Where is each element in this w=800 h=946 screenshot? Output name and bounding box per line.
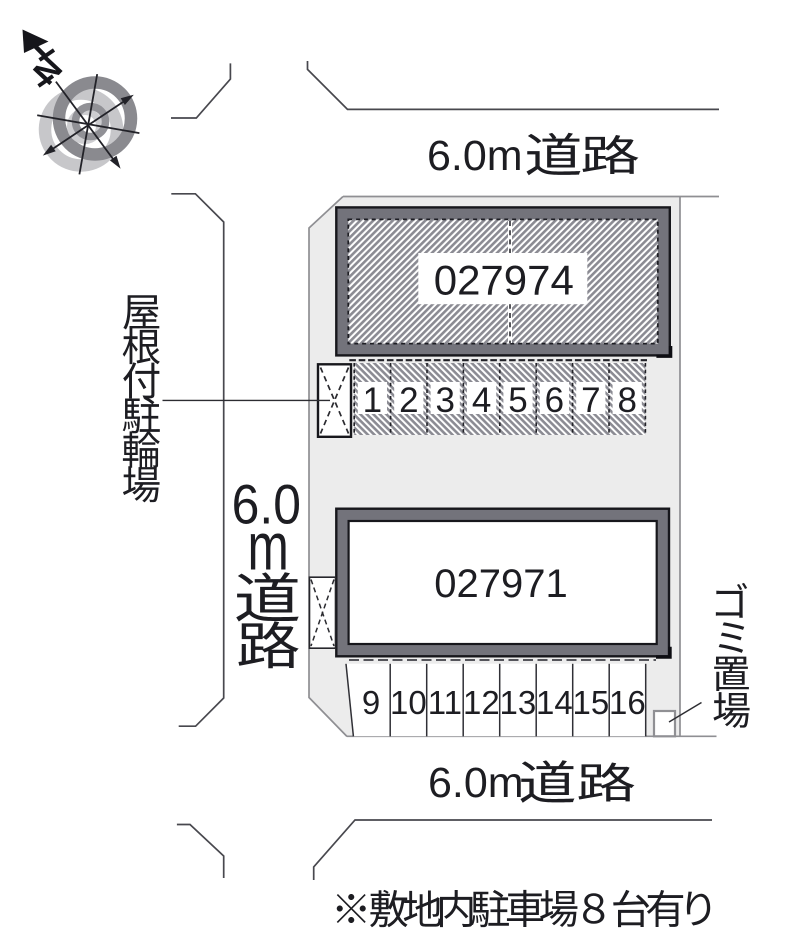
svg-text:12: 12 [463,684,500,721]
svg-text:3: 3 [435,381,454,420]
svg-text:8: 8 [617,381,636,420]
svg-text:027971: 027971 [434,562,567,606]
svg-text:6.0m: 6.0m [428,759,524,807]
svg-text:7: 7 [581,381,600,420]
svg-text:6: 6 [545,381,564,420]
svg-text:11: 11 [428,684,462,721]
svg-text:027974: 027974 [434,257,574,304]
svg-text:10: 10 [390,684,427,721]
svg-text:6.0m: 6.0m [427,132,523,180]
svg-text:9: 9 [362,684,380,721]
svg-text:5: 5 [508,381,527,420]
svg-text:2: 2 [399,381,418,420]
svg-text:m: m [247,510,288,584]
svg-text:13: 13 [500,684,537,721]
svg-text:16: 16 [609,684,646,721]
svg-text:14: 14 [536,684,573,721]
svg-text:15: 15 [573,684,610,721]
svg-text:1: 1 [363,381,382,420]
svg-text:4: 4 [472,381,491,420]
